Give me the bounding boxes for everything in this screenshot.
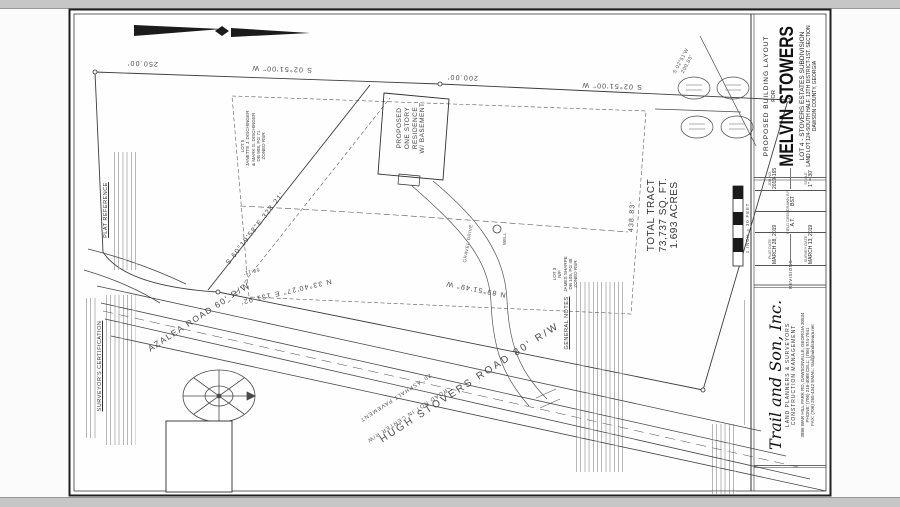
firm-tagline-2: CONSTRUCTION MANAGEMENT	[791, 325, 797, 426]
well-symbol	[493, 225, 501, 233]
graphic-scale-bar	[733, 186, 743, 266]
dimension-top-right-length: 200.00'	[447, 73, 478, 81]
compass-rose	[183, 370, 255, 422]
plat-reference-body	[114, 152, 138, 270]
plat-date: MARCH 28, 2019	[772, 234, 778, 264]
corner-monuments	[93, 70, 790, 392]
title-county: DAWSON COUNTY, GEORGIA	[812, 61, 818, 131]
firm-fax-email: FAX: (706) 265-4342 EMAIL: trail@windstr…	[810, 324, 815, 425]
monument-callouts	[655, 36, 756, 146]
surveyor-certification-sidenote	[86, 298, 98, 438]
surveyor-certification-heading: SURVEYOR'S CERTIFICATION	[97, 295, 106, 437]
scanned-plat-page: PROPOSED BUILDING LAYOUT FOR MELVIN STOW…	[0, 0, 900, 506]
total-tract-label: TOTAL TRACT 73,737 SQ. FT. 1.693 ACRES	[646, 162, 682, 268]
survey-date: MARCH 13, 2019	[808, 234, 814, 264]
well-label: WELL	[502, 233, 507, 245]
job-number: 2019-165	[772, 168, 778, 189]
residence-label: PROPOSED ONE STORY RESIDENCE W/ BASEMENT	[396, 92, 436, 164]
general-notes-body	[576, 282, 624, 472]
north-ornament	[134, 25, 310, 37]
title-kicker: PROPOSED BUILDING LAYOUT	[763, 36, 770, 157]
dimension-top-left-length: 250.00'	[127, 59, 158, 67]
parcel-boundary	[95, 72, 788, 390]
adjoiner-lot5: LOT 5 JANETTE J. DISCHINGER & MARK S. DI…	[240, 126, 266, 166]
title-subdivision: LOT 4 - STOVERS ESTATES SUBDIVISION	[799, 32, 806, 161]
field-crew: A.T.	[790, 218, 796, 227]
sheet-inner-border	[74, 14, 826, 491]
scale-bar-caption: 1 INCH = 30 FEET	[745, 186, 752, 270]
client-name: MELVIN STOWERS	[778, 10, 797, 181]
drawn-by: BST	[790, 196, 796, 206]
surveyor-certification-body	[106, 295, 136, 445]
scale-value: 1" = 30'	[808, 168, 814, 189]
info-table: REVISIONS PLAT DATEMARCH 28, 2019 SURVEY…	[755, 179, 826, 283]
plat-reference-heading: PLAT REFERENCE	[103, 154, 112, 266]
firm-name: Trail and Son, Inc.	[766, 300, 785, 450]
general-notes-heading: GENERAL NOTES	[564, 294, 573, 352]
detail-box	[166, 421, 232, 492]
legend-block	[712, 424, 736, 494]
file-path-note	[744, 300, 747, 425]
firm-block: Trail and Son, Inc. LAND PLANNERS & SURV…	[755, 287, 826, 463]
title-block: PROPOSED BUILDING LAYOUT FOR MELVIN STOW…	[755, 16, 826, 176]
